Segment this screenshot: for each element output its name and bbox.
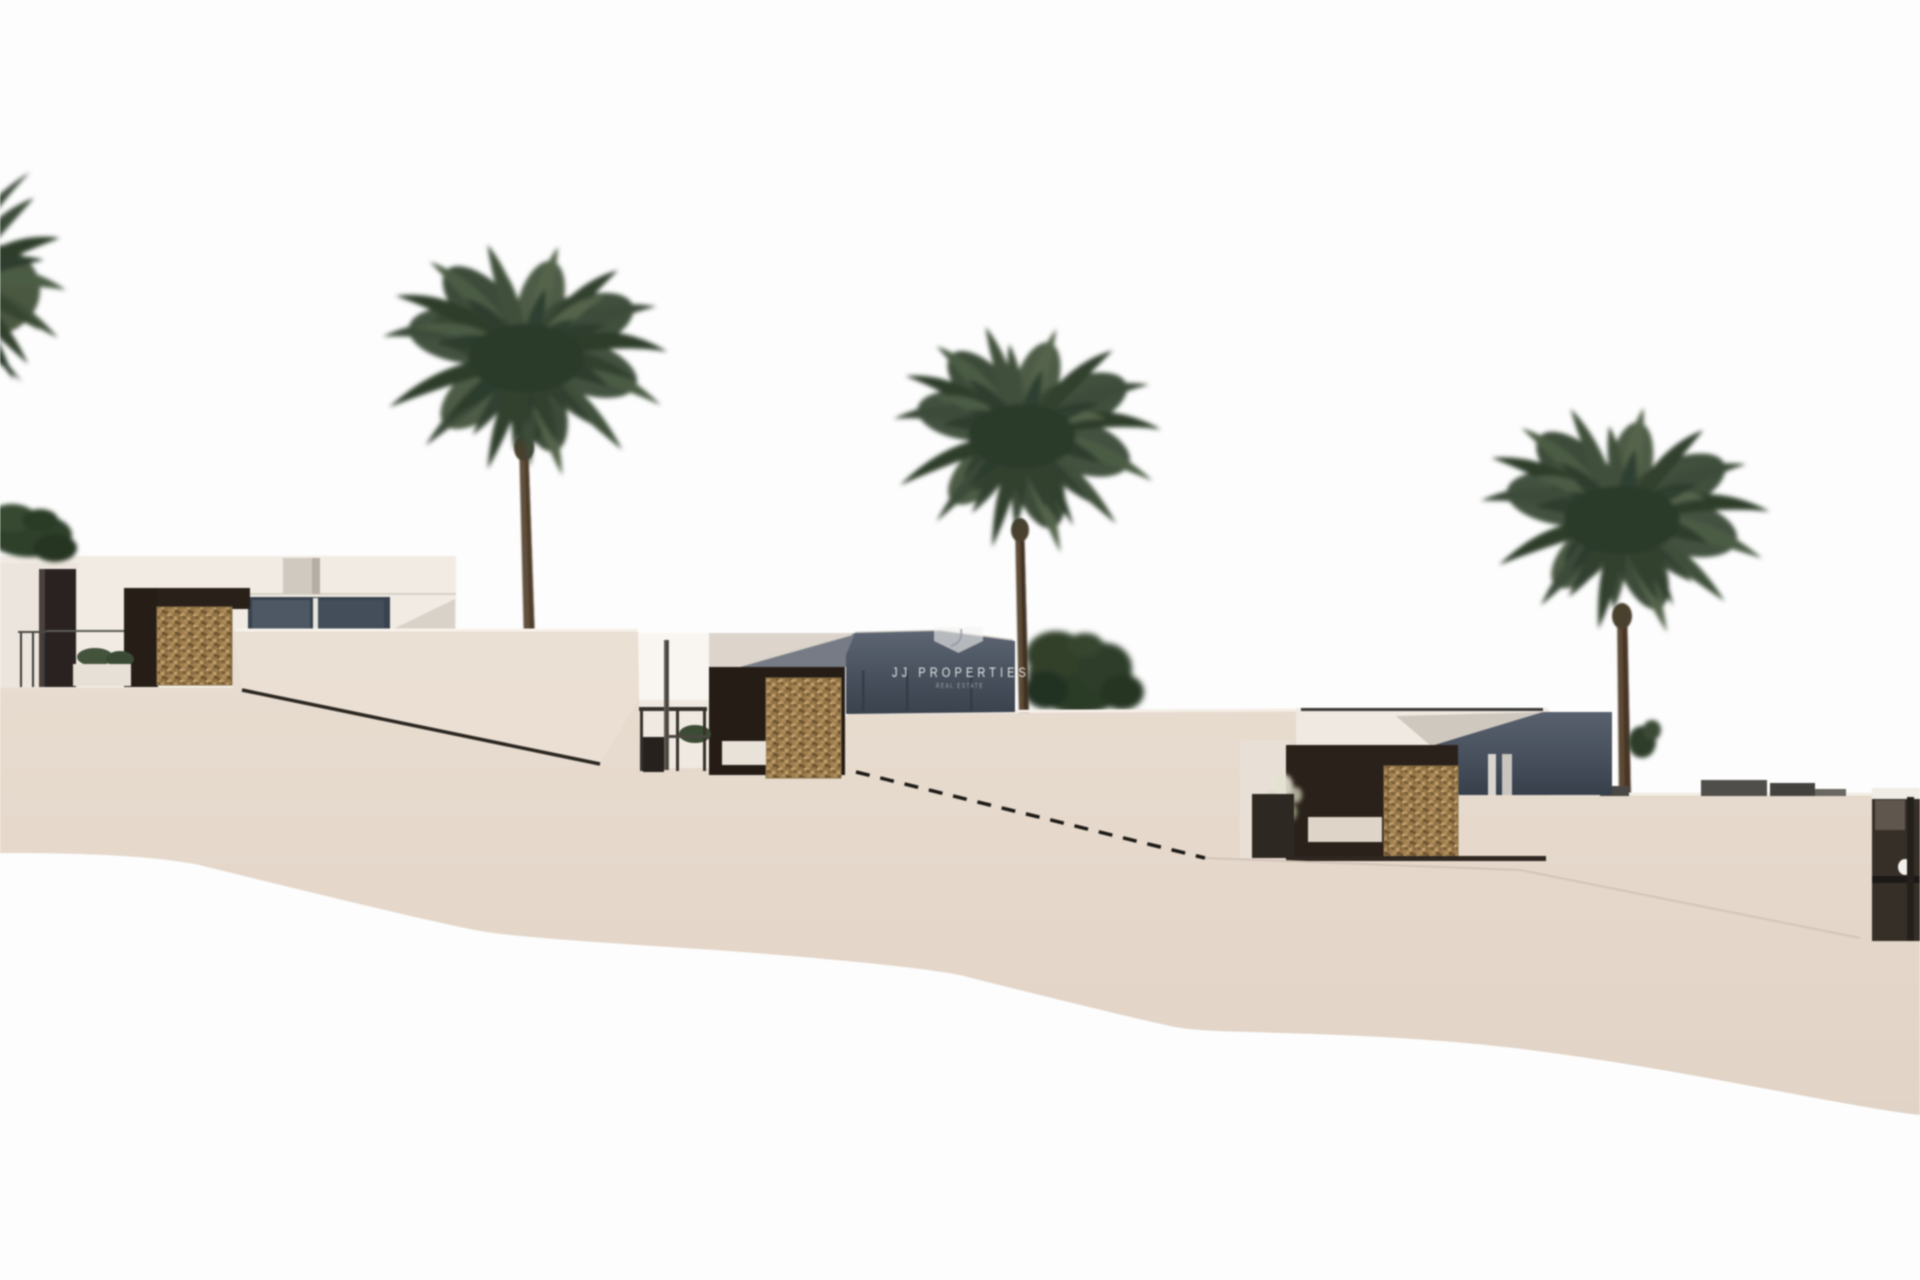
svg-text:REAL ESTATE: REAL ESTATE [936,683,984,690]
svg-text:JJ PROPERTIES: JJ PROPERTIES [892,665,1030,681]
